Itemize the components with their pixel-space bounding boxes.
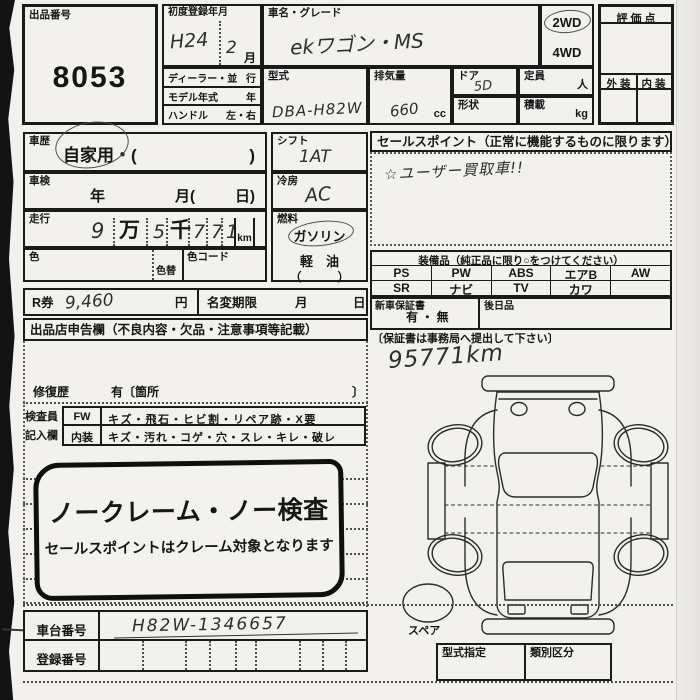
later-item-label: 後日品: [484, 302, 514, 312]
sales-point-area: ☆ユーザー買取車!!: [370, 152, 672, 246]
evaluation-score-label: 評 価 点: [601, 7, 671, 24]
inspector-table: FW キズ・飛石・ヒビ割・リペア跡・X要 内装 キズ・汚れ・コゲ・穴・スレ・キレ…: [62, 406, 366, 446]
no-claim-stamp: ノークレーム・ノー検査 セールスポイントはクレーム対象となります: [33, 459, 345, 601]
wheel-front-right: [611, 421, 671, 470]
chassis-number-value: H82W-1346657: [132, 616, 288, 636]
equip-empty: [611, 281, 670, 296]
rticket-label: R券: [32, 297, 54, 310]
load-box: 積載 kg: [518, 96, 594, 125]
fuel-label: 燃料: [277, 214, 298, 225]
displacement-label: 排気量: [374, 71, 406, 82]
sales-point-note: ☆ユーザー買取車!!: [384, 160, 525, 182]
capacity-box: 定員 人: [518, 67, 594, 96]
taillight-left: [508, 605, 525, 614]
color-change-label: 色替: [156, 267, 176, 277]
door-box: ドア 5D: [452, 67, 518, 96]
equip-navi: ナビ: [432, 281, 492, 296]
registration-number-label: 登録番号: [25, 641, 100, 670]
front-bumper: [482, 376, 614, 391]
auction-sheet: 出品番号 8053 初度登録年月 H24 2 月 車名・グレード ekワゴン・M…: [0, 0, 700, 700]
spare-label: スペア: [408, 626, 440, 637]
equip-sr: SR: [372, 281, 432, 296]
color-code-label: 色コード: [187, 252, 229, 263]
equip-abs: ABS: [492, 266, 552, 280]
side-sill-right: [651, 463, 668, 539]
car-history-label: 車歴: [29, 136, 50, 147]
interior-text: キズ・汚れ・コゲ・穴・スレ・キレ・破レ: [102, 426, 364, 444]
month-unit: 月: [244, 52, 256, 64]
shaken-box: 車検 年 月( 日): [23, 172, 267, 210]
drive-4wd: 4WD: [542, 45, 592, 60]
model-code-box: 型式 DBA-H82W: [262, 67, 368, 125]
equip-pw: PW: [432, 266, 492, 280]
car-name-box: 車名・グレード ekワゴン・MS: [262, 4, 540, 67]
aircon-label: 冷房: [277, 176, 298, 187]
km-unit: km: [236, 233, 253, 244]
auction-number-value: 8053: [25, 61, 155, 95]
warranty-box: 新車保証書 有 ・ 無 後日品: [370, 297, 672, 330]
drive-type-box: 2WD 4WD: [540, 4, 594, 67]
equipment-table: 装備品（純正品に限り○をつけてください） PS PW ABS エアB AW SR…: [370, 250, 672, 297]
load-label: 積載: [524, 100, 545, 111]
equip-tv: TV: [492, 281, 552, 296]
divider: [219, 21, 221, 65]
id-table: 車台番号 H82W-1346657 登録番号: [23, 610, 368, 672]
mileage-box: 走行 9 万 5 千 7 7 1 km: [23, 210, 267, 248]
shift-box: シフト 1AT: [271, 132, 368, 172]
type-designation-table: 型式指定 類別区分: [436, 643, 612, 681]
headlight-right: [569, 403, 585, 416]
sales-point-header: セールスポイント（正常に機能するものに限ります）: [370, 131, 672, 152]
aircon-value: AC: [304, 185, 332, 206]
wheel-rear-right: [611, 531, 671, 580]
type-designation-label: 型式指定: [442, 648, 486, 659]
displacement-box: 排気量 660 cc: [368, 67, 452, 125]
color-label: 色: [29, 252, 40, 263]
car-name-label: 車名・グレード: [268, 8, 342, 19]
name-change-label: 名変期限: [207, 297, 257, 310]
fuel-box: 燃料 ガソリン 軽 油 （ ）: [271, 210, 368, 282]
inspector-label-2: 記入欄: [25, 431, 58, 442]
repair-history-row: 修復歴 有〔箇所 〕: [23, 384, 368, 400]
repair-history-text: 有〔箇所: [111, 386, 159, 398]
color-box: 色 色替 色コード: [23, 248, 267, 282]
mileage-digit: 5: [153, 223, 165, 242]
declaration-header: 出品店申告欄（不良内容・欠品・注意事項等記載）: [23, 318, 368, 341]
exterior-label: 外 装: [601, 76, 636, 91]
car-diagram-top-view: [398, 356, 698, 641]
sales-point-header-text: セールスポイント（正常に機能するものに限ります）: [377, 136, 677, 149]
equip-airbag: エアB: [551, 266, 611, 280]
stamp-line1: ノークレーム・ノー検査: [38, 490, 338, 530]
first-registration-era: H24: [169, 31, 209, 53]
registration-number-cell: [100, 641, 366, 670]
fuel-paren: （ ）: [273, 268, 366, 285]
displacement-value: 660: [389, 101, 419, 119]
model-code-label: 型式: [268, 71, 289, 82]
chassis-number-cell: H82W-1346657: [100, 612, 366, 639]
equipment-header: 装備品（純正品に限り○をつけてください）: [372, 252, 670, 266]
shift-value: 1AT: [299, 149, 331, 166]
fw-cell: FW: [64, 408, 102, 424]
interior-cell: 内装: [64, 426, 102, 444]
equip-ps: PS: [372, 266, 432, 280]
wheel-front-left: [425, 421, 485, 470]
shaken-label: 車検: [29, 176, 50, 187]
mileage-label: 走行: [29, 214, 50, 225]
capacity-label: 定員: [524, 71, 545, 82]
equip-aw: AW: [611, 266, 670, 280]
person-unit: 人: [577, 80, 588, 91]
shape-label: 形状: [458, 100, 479, 111]
mileage-digit: 9: [91, 221, 104, 242]
taillight-right: [571, 605, 588, 614]
warranty-options: 有 ・ 無: [406, 311, 449, 323]
fw-text: キズ・飛石・ヒビ割・リペア跡・X要: [102, 408, 364, 424]
headlight-left: [511, 403, 527, 416]
aircon-box: 冷房 AC: [271, 172, 368, 210]
mileage-digit: 7: [193, 223, 205, 242]
equip-leather: カワ: [551, 281, 611, 296]
chassis-number-label: 車台番号: [25, 612, 100, 639]
kg-unit: kg: [575, 109, 588, 120]
model-year-label: モデル年式: [168, 89, 218, 104]
rticket-value: 9,460: [64, 292, 114, 312]
inspector-label-1: 検査員: [25, 412, 58, 423]
handle-label: ハンドル: [168, 107, 208, 122]
dealer-label: ディーラー・並: [168, 70, 237, 85]
shift-label: シフト: [277, 136, 309, 147]
declaration-header-text: 出品店申告欄（不良内容・欠品・注意事項等記載）: [30, 324, 318, 337]
door-value: 5D: [473, 79, 493, 94]
first-registration-box: 初度登録年月 H24 2 月: [162, 4, 262, 67]
car-name-value: ekワゴン・MS: [290, 31, 425, 58]
mileage-unit-man: 万: [119, 220, 140, 241]
stamp-line2: セールスポイントはクレーム対象となります: [39, 534, 339, 559]
yen-unit: 円: [175, 297, 188, 310]
first-registration-month: 2: [226, 40, 237, 57]
auction-number-box: 出品番号 8053: [22, 4, 158, 125]
model-code-value: DBA-H82W: [272, 101, 363, 121]
shape-box: 形状: [452, 96, 518, 125]
class-division-label: 類別区分: [530, 648, 574, 659]
repair-history-label: 修復歴: [33, 386, 69, 398]
interior-label: 内 装: [636, 76, 671, 91]
car-history-box: 車歴 自家用・( ): [23, 132, 267, 172]
side-sill-left: [428, 463, 445, 539]
windshield: [499, 453, 598, 497]
rear-window: [503, 562, 593, 600]
spare-tire-icon: [403, 584, 453, 622]
wheel-rear-left: [425, 531, 485, 580]
auction-number-label: 出品番号: [29, 10, 71, 21]
dealer-info-box: ディーラー・並行 モデル年式年 ハンドル左・右: [162, 67, 262, 125]
km-cell: km: [234, 218, 255, 246]
cc-unit: cc: [434, 109, 446, 120]
handdrawn-circle-2wd: [543, 8, 592, 35]
scan-edge-left: [0, 0, 15, 700]
first-registration-label: 初度登録年月: [168, 8, 228, 18]
rticket-box: R券 9,460 円 名変期限 月 日: [23, 288, 368, 316]
rear-bumper: [482, 619, 614, 634]
evaluation-box: 評 価 点 外 装 内 装: [598, 4, 674, 125]
